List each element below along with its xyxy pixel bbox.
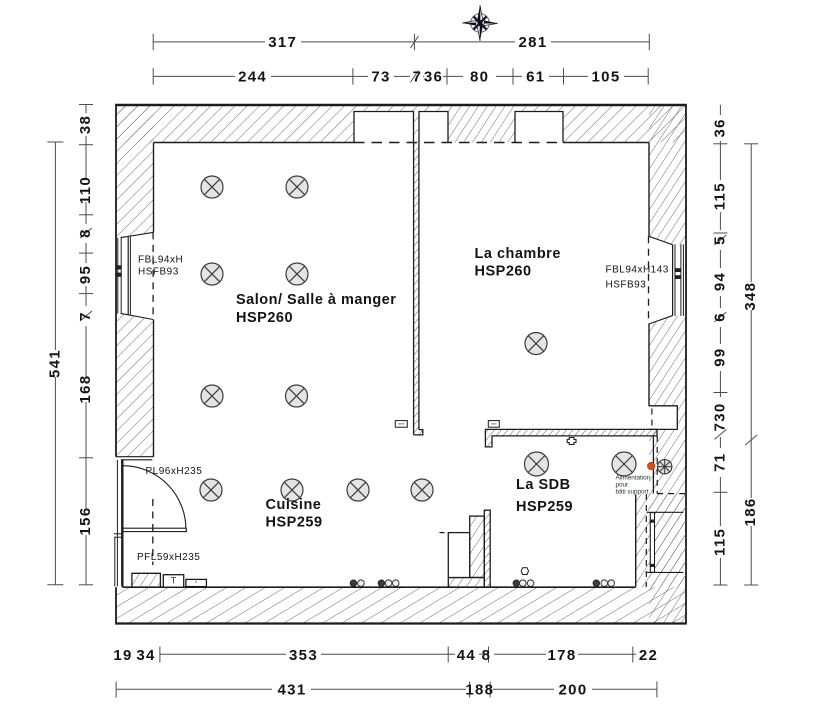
- svg-text:HSFB93: HSFB93: [138, 267, 179, 278]
- svg-text:19: 19: [113, 647, 132, 664]
- svg-text:7: 7: [413, 69, 423, 86]
- svg-text:73: 73: [371, 69, 390, 86]
- svg-text:La SDB: La SDB: [516, 477, 571, 493]
- svg-text:bâti support: bâti support: [616, 489, 649, 496]
- svg-text:95: 95: [77, 265, 94, 284]
- svg-text:61: 61: [526, 69, 545, 86]
- svg-text:353: 353: [289, 647, 318, 664]
- svg-text:FBL94xH: FBL94xH: [138, 255, 183, 266]
- svg-text:71: 71: [711, 453, 728, 472]
- svg-text:Cuisine: Cuisine: [266, 497, 322, 513]
- svg-text:115: 115: [711, 182, 728, 210]
- svg-text:36: 36: [711, 118, 728, 137]
- svg-text:HSP260: HSP260: [236, 310, 293, 326]
- svg-text:HSP260: HSP260: [475, 264, 532, 280]
- svg-text:115: 115: [711, 528, 728, 556]
- svg-text:8: 8: [482, 647, 492, 664]
- svg-text:PFL59xH235: PFL59xH235: [137, 552, 200, 563]
- svg-text:6: 6: [711, 312, 728, 322]
- svg-text:HSP259: HSP259: [516, 499, 573, 515]
- svg-text:244: 244: [238, 69, 267, 86]
- svg-text:22: 22: [639, 647, 658, 664]
- svg-text:38: 38: [77, 115, 94, 134]
- svg-text:Salon/ Salle à manger: Salon/ Salle à manger: [236, 292, 396, 308]
- svg-text:Alimentation: Alimentation: [616, 475, 651, 482]
- svg-text:34: 34: [136, 647, 155, 664]
- svg-text:HSFB93: HSFB93: [606, 280, 647, 291]
- svg-text:178: 178: [548, 647, 577, 664]
- svg-text:168: 168: [77, 375, 94, 404]
- svg-text:5: 5: [711, 235, 728, 245]
- svg-text:348: 348: [742, 282, 759, 311]
- svg-text:44: 44: [457, 647, 476, 664]
- svg-text:T: T: [171, 576, 177, 586]
- svg-text:FBL94xH143: FBL94xH143: [606, 265, 669, 276]
- svg-text:105: 105: [592, 69, 621, 86]
- svg-text:pour: pour: [616, 482, 629, 489]
- svg-text:La chambre: La chambre: [475, 246, 561, 262]
- svg-text:36: 36: [424, 69, 443, 86]
- svg-text:730: 730: [711, 402, 728, 431]
- svg-text:281: 281: [519, 34, 548, 51]
- svg-text:200: 200: [559, 682, 588, 699]
- svg-text:541: 541: [46, 349, 63, 378]
- svg-text:186: 186: [742, 497, 759, 526]
- svg-text:156: 156: [77, 507, 94, 536]
- svg-text:94: 94: [711, 272, 728, 291]
- svg-text:HSP259: HSP259: [266, 515, 323, 531]
- svg-text:99: 99: [711, 347, 728, 366]
- svg-text:80: 80: [470, 69, 489, 86]
- svg-text:188: 188: [465, 682, 494, 699]
- svg-text:8: 8: [77, 228, 94, 238]
- svg-text:317: 317: [268, 34, 297, 51]
- svg-text:431: 431: [278, 682, 307, 699]
- svg-text:PL96xH235: PL96xH235: [146, 466, 203, 477]
- svg-text:110: 110: [77, 176, 94, 204]
- svg-text:7: 7: [77, 311, 94, 321]
